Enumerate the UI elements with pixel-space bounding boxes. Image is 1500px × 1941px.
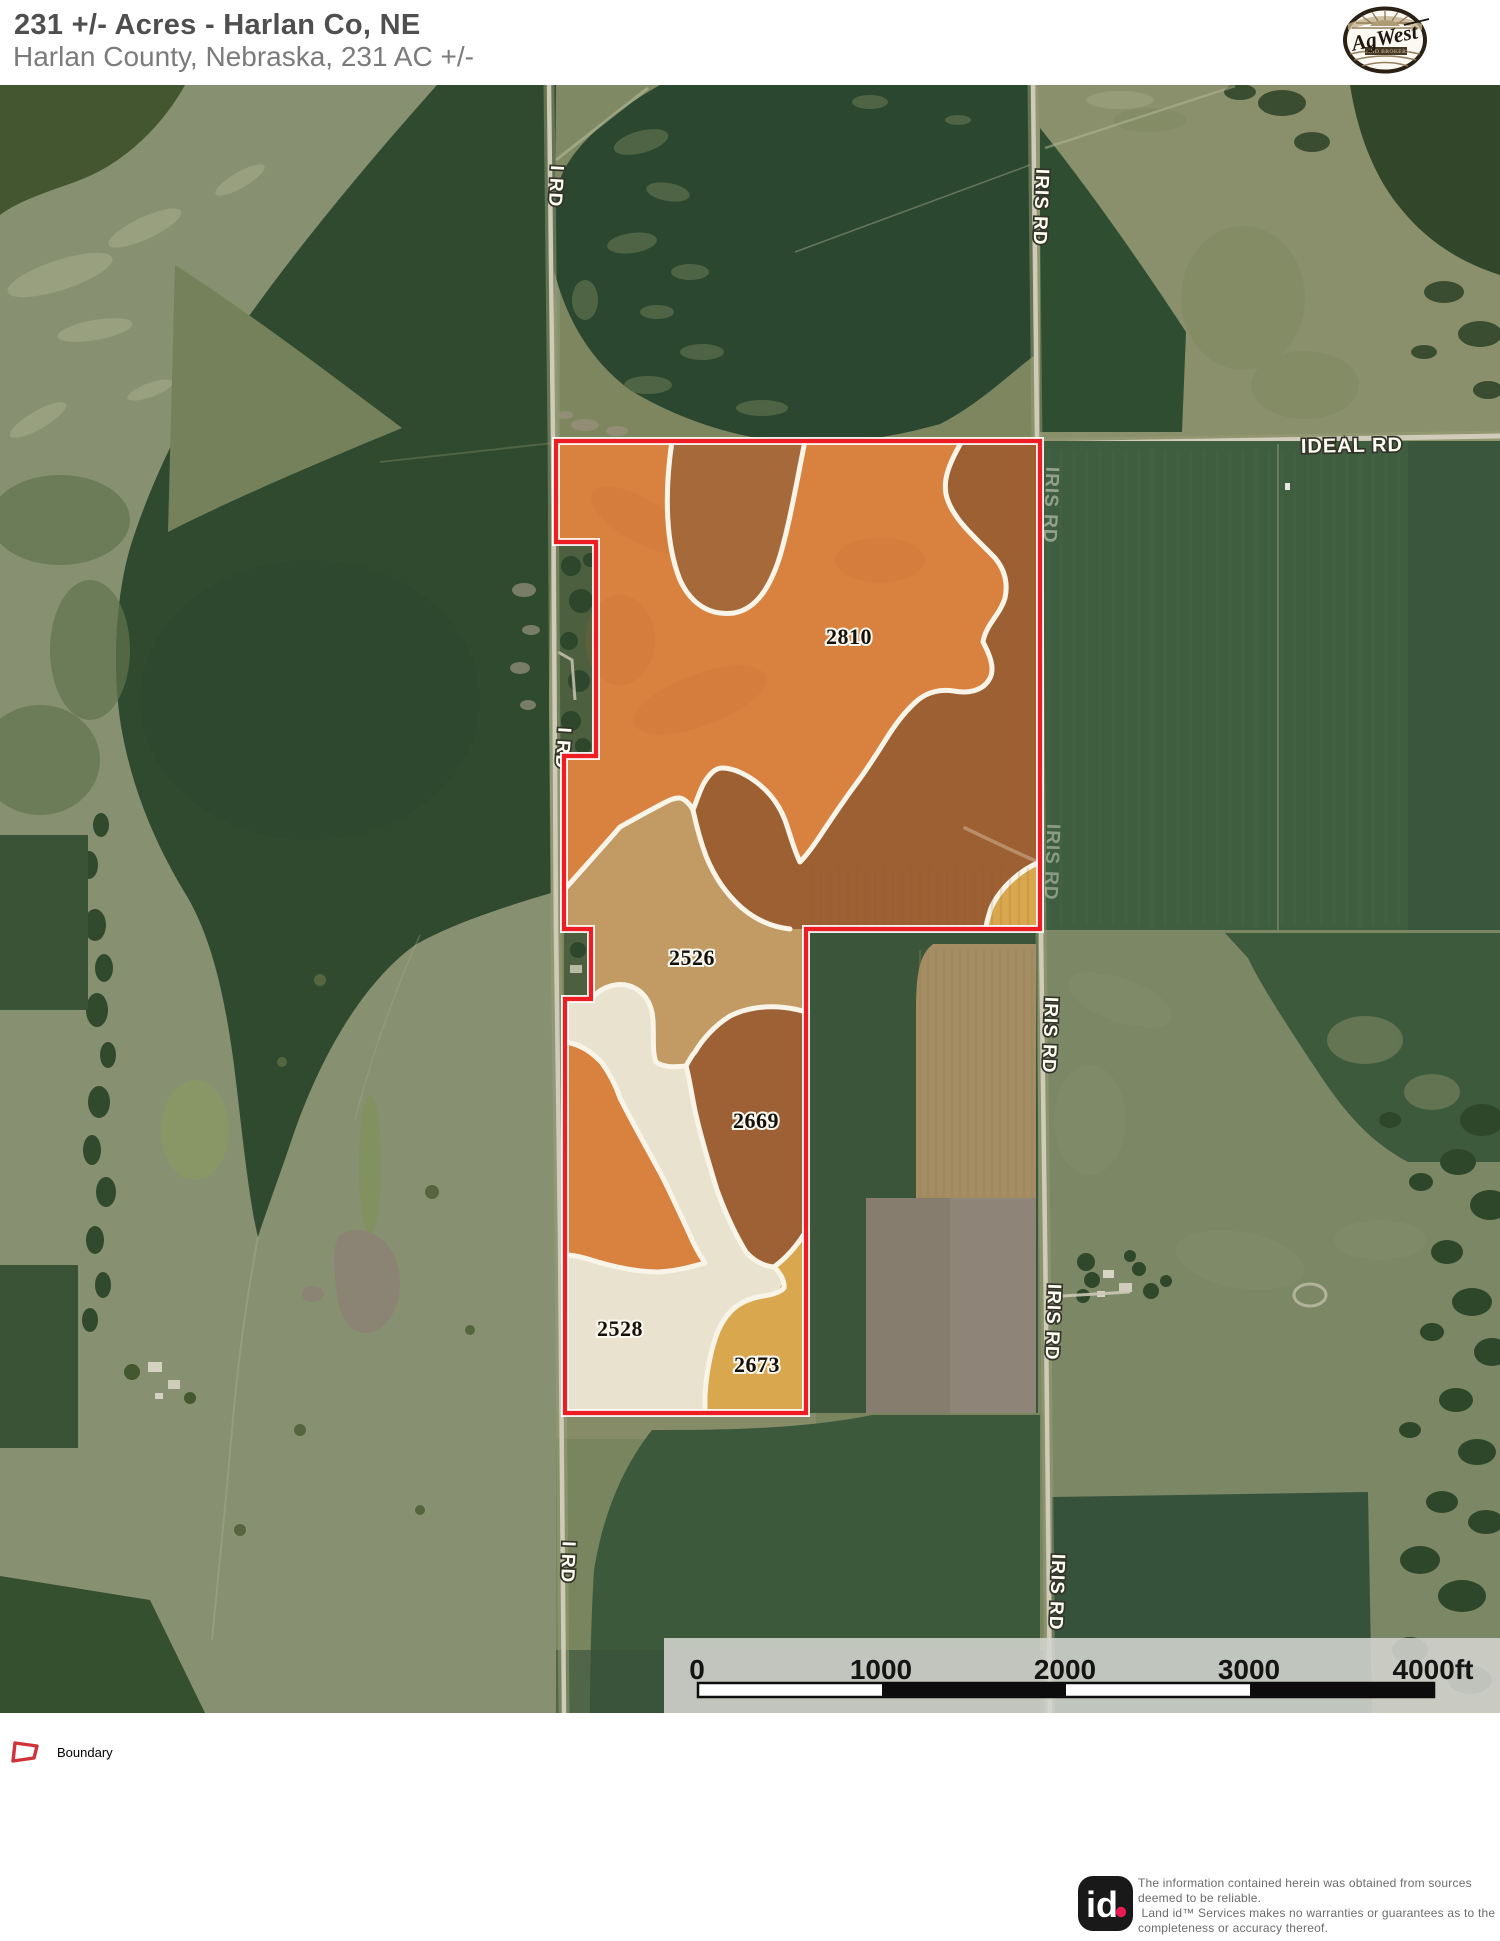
svg-text:IRIS RD: IRIS RD — [1041, 1284, 1065, 1361]
svg-text:3000: 3000 — [1218, 1654, 1280, 1685]
svg-text:IDEAL RD: IDEAL RD — [1301, 434, 1403, 458]
svg-text:2810: 2810 — [826, 624, 872, 649]
svg-text:IRIS RD: IRIS RD — [1029, 169, 1053, 246]
svg-text:1000: 1000 — [850, 1654, 912, 1685]
svg-text:IRIS RD: IRIS RD — [1038, 997, 1062, 1074]
svg-text:0: 0 — [689, 1654, 705, 1685]
svg-text:2000: 2000 — [1034, 1654, 1096, 1685]
svg-text:2669: 2669 — [733, 1108, 779, 1133]
svg-text:id: id — [1086, 1884, 1118, 1925]
svg-text:2526: 2526 — [669, 945, 715, 970]
svg-text:2673: 2673 — [734, 1352, 780, 1377]
svg-text:I RD: I RD — [556, 1541, 578, 1584]
svg-text:2528: 2528 — [597, 1316, 643, 1341]
svg-text:I RD: I RD — [544, 165, 567, 208]
svg-text:4000ft: 4000ft — [1393, 1654, 1474, 1685]
svg-text:IRIS RD: IRIS RD — [1045, 1554, 1069, 1631]
